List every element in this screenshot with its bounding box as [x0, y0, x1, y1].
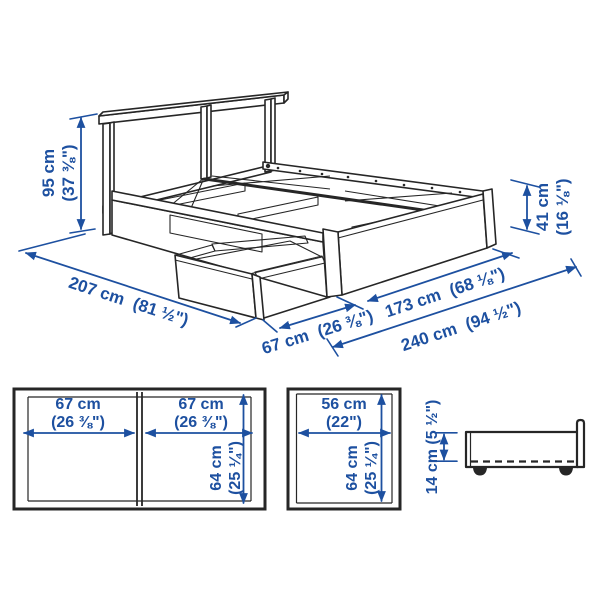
side-view-box: 14 cm (5 ½") — [424, 400, 584, 495]
product-dimension-diagram: 95 cm (37 ⅜") 207 cm (81 ½") 67 cm (26 ⅜… — [0, 0, 600, 600]
dim-41-metric: 41 cm — [533, 183, 552, 231]
two-box-left-metric: 67 cm — [55, 396, 100, 413]
single-box-width-metric: 56 cm — [321, 396, 366, 413]
two-box-left-imperial: (26 ⅜") — [51, 414, 105, 431]
two-box-right-imperial: (26 ⅜") — [174, 414, 228, 431]
two-box-height-imperial: (25 ¼") — [227, 441, 244, 495]
dim-173-metric: 173 cm — [383, 285, 444, 321]
box-handle-tab — [577, 420, 584, 467]
front-view-single-box: 56 cm (22") 64 cm (25 ¼") — [288, 389, 400, 509]
dim-240-imperial: (94 ½") — [463, 298, 523, 334]
single-box-height-metric: 64 cm — [344, 445, 361, 490]
caster-wheel-right — [559, 468, 573, 476]
caster-wheel-left — [473, 468, 487, 476]
footboard-left-post — [323, 229, 342, 297]
headboard-right-post — [265, 99, 271, 172]
dimension-67cm: 67 cm (26 ⅜") — [259, 297, 375, 358]
two-box-right-metric: 67 cm — [178, 396, 223, 413]
single-box-height-imperial: (25 ¼") — [363, 441, 380, 495]
single-box-width-imperial: (22") — [326, 414, 362, 431]
diagram-canvas: 95 cm (37 ⅜") 207 cm (81 ½") 67 cm (26 ⅜… — [0, 0, 600, 600]
two-box-height-metric: 64 cm — [208, 445, 225, 490]
dim-41-imperial: (16 ⅛") — [553, 178, 572, 235]
front-view-two-boxes: 67 cm (26 ⅜") 67 cm (26 ⅜") 64 cm (25 ¼"… — [14, 389, 265, 509]
headboard-left-post — [103, 123, 110, 235]
side-box-height-label: 14 cm (5 ½") — [424, 400, 441, 495]
headboard-mid-post — [201, 106, 207, 179]
dim-173-imperial: (68 ⅛") — [447, 264, 507, 300]
dim-207-metric: 207 cm — [66, 273, 127, 309]
dim-67-metric: 67 cm — [259, 326, 311, 358]
dim-240-metric: 240 cm — [399, 319, 460, 355]
dim-95-metric: 95 cm — [39, 149, 58, 197]
dimension-95cm: 95 cm (37 ⅜") — [39, 114, 97, 233]
cross-braces — [212, 176, 452, 208]
dimension-41cm: 41 cm (16 ⅛") — [511, 178, 572, 235]
dim-95-imperial: (37 ⅜") — [59, 144, 78, 201]
